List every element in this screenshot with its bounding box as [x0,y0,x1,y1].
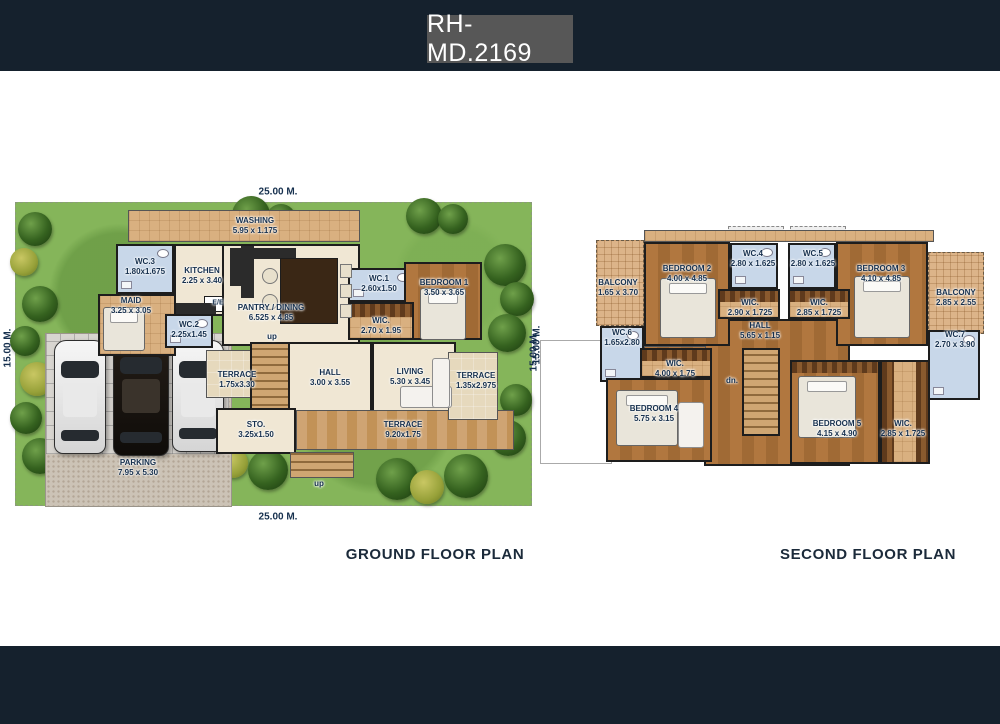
second-floor-plan: BALCONY1.65 x 3.70 BEDROOM 24.00 x 4.85 … [538,222,1000,484]
tree-icon [500,282,534,316]
ground-floor-plan: WASHING5.95 x 1.175 WC.31.80x1.675 KITCH… [10,190,535,525]
room-label-pantry: PANTRY / DINING6.525 x 4.85 [238,303,305,323]
staircase-second [742,348,780,436]
room-label-storage: STO.3.25x1.50 [238,420,274,440]
car-white-left [54,340,106,454]
room-label-wc1: WC.12.60x1.50 [361,274,397,294]
room-wic-bedroom5 [880,360,930,464]
car-roof [122,379,160,413]
room-label-wic-bedroom2: WIC.2.90 x 1.725 [728,298,772,318]
tree-icon [248,450,288,490]
car-roof [63,383,97,417]
room-label-bedroom4: BEDROOM 45.75 x 3.15 [630,404,678,424]
room-label-wc2: WC.22.25x1.45 [171,320,207,340]
car-windshield [120,357,162,374]
dim-bottom: 25.00 M. [259,512,298,523]
tree-icon [488,314,526,352]
tree-icon [10,402,42,434]
room-label-bedroom1: BEDROOM 13.50 x 3.65 [420,278,468,298]
tree-icon [10,326,40,356]
room-label-kitchen: KITCHEN2.25 x 3.40 [182,266,222,286]
room-label-washing: WASHING5.95 x 1.175 [233,216,277,236]
room-label-wc4: WC.42.80 x 1.625 [731,249,775,269]
dim-left: 15.00 M. [3,329,14,368]
room-label-bedroom3: BEDROOM 34.10 x 4.85 [857,264,905,284]
terrace-steps [290,452,354,478]
car-rear-glass [61,430,99,441]
room-label-hall: HALL3.00 x 3.55 [310,368,350,388]
room-label-terrace-right: TERRACE1.35x2.975 [456,371,496,391]
room-label-wic-ground: WIC.2.70 x 1.95 [361,316,401,336]
header-bar: RH-MD.2169 [0,0,1000,71]
room-label-wc5: WC.52.80 x 1.625 [791,249,835,269]
bush-icon [410,470,444,504]
bush-icon [10,248,38,276]
room-label-bedroom2: BEDROOM 24.00 x 4.85 [663,264,711,284]
room-label-hall-second: HALL5.65 x 1.15 [740,321,780,341]
room-label-wc6: WC.61.65x2.80 [604,328,640,348]
room-label-terrace-bottom: TERRACE9.20x1.75 [384,420,423,440]
dim-top: 25.00 M. [259,187,298,198]
room-label-terrace-left: TERRACE1.75x3.30 [218,370,257,390]
room-label-electrical: E/E [212,300,223,309]
car-rear-glass [120,432,162,443]
stairs-down-label: dn. [726,376,738,386]
room-label-maid: MAID3.25 x 3.05 [111,296,151,316]
room-label-bedroom5: BEDROOM 54.15 x 4.90 [813,419,861,439]
room-label-wc7: WC.72.70 x 3.90 [935,330,975,350]
page: RH-MD.2169 [0,0,1000,724]
room-label-balcony-left: BALCONY1.65 x 3.70 [598,278,638,298]
tree-icon [484,244,526,286]
room-label-wic-bedroom5: WIC.2.85 x 1.725 [881,419,925,439]
stairs-up-label: up [267,332,277,342]
car-windshield [61,361,99,378]
terrace-steps-up-label: up [314,479,324,489]
room-label-parking: PARKING7.95 x 5.30 [118,458,158,478]
tree-icon [22,286,58,322]
room-label-wc3: WC.31.80x1.675 [125,257,165,277]
model-title: RH-MD.2169 [427,10,573,68]
tree-icon [444,454,488,498]
room-label-balcony-right: BALCONY2.85 x 2.55 [936,288,976,308]
model-title-box: RH-MD.2169 [427,15,573,63]
car-rear-glass [179,428,217,439]
roof-eave-strip [644,230,934,242]
ground-floor-caption: GROUND FLOOR PLAN [280,546,590,563]
room-bedroom1 [404,262,482,340]
room-bedroom5 [790,360,880,464]
second-floor-caption: SECOND FLOOR PLAN [713,546,1000,563]
room-label-living: LIVING5.30 x 3.45 [390,367,430,387]
room-label-wic-bedroom3: WIC.2.85 x 1.725 [797,298,841,318]
dim-left-second: 15.00 M. [529,333,540,372]
footer-bar [0,646,1000,724]
tree-icon [406,198,442,234]
tree-icon [438,204,468,234]
tree-icon [18,212,52,246]
room-label-wic-bedroom4: WIC.4.00 x 1.75 [655,359,695,379]
